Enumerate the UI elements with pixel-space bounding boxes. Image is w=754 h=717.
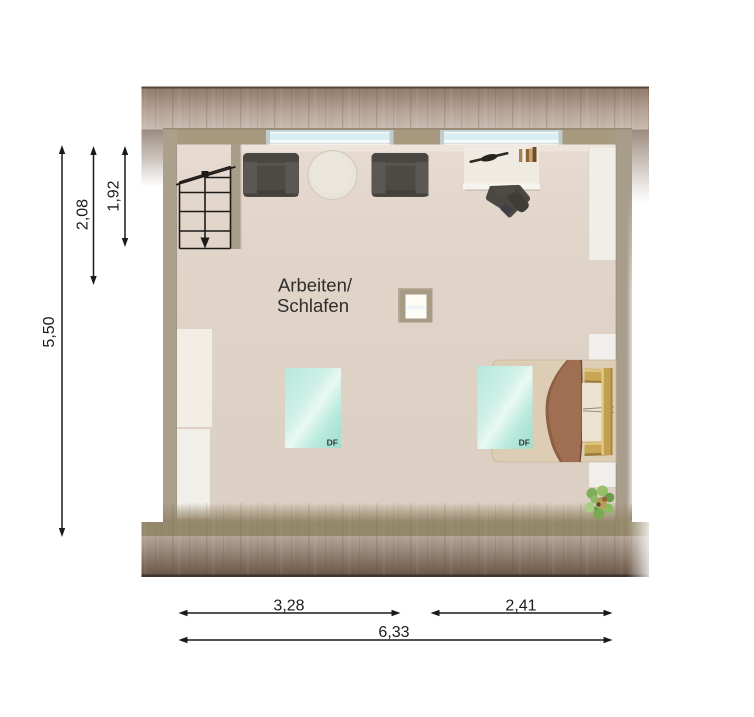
svg-text:2,41: 2,41	[505, 598, 536, 615]
svg-text:5,50: 5,50	[41, 316, 58, 347]
svg-text:2,08: 2,08	[75, 199, 92, 230]
svg-text:3,28: 3,28	[273, 598, 304, 615]
svg-text:DF: DF	[327, 438, 338, 448]
svg-text:Schlafen: Schlafen	[277, 295, 349, 316]
svg-text:1,92: 1,92	[106, 180, 123, 211]
svg-text:Arbeiten/: Arbeiten/	[278, 275, 353, 296]
svg-text:6,33: 6,33	[378, 624, 409, 641]
svg-text:DF: DF	[519, 438, 530, 448]
